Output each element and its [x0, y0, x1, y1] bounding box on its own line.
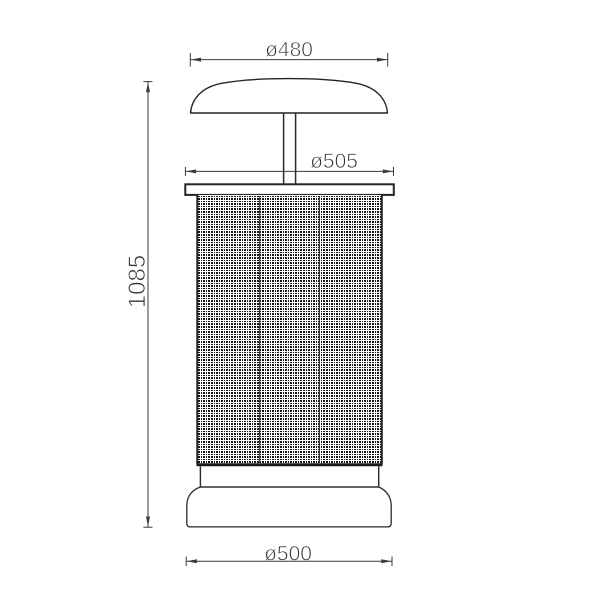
svg-text:ø480: ø480 [265, 39, 313, 62]
svg-text:ø500: ø500 [264, 543, 312, 566]
svg-text:1085: 1085 [124, 255, 151, 308]
svg-text:ø505: ø505 [310, 150, 358, 173]
